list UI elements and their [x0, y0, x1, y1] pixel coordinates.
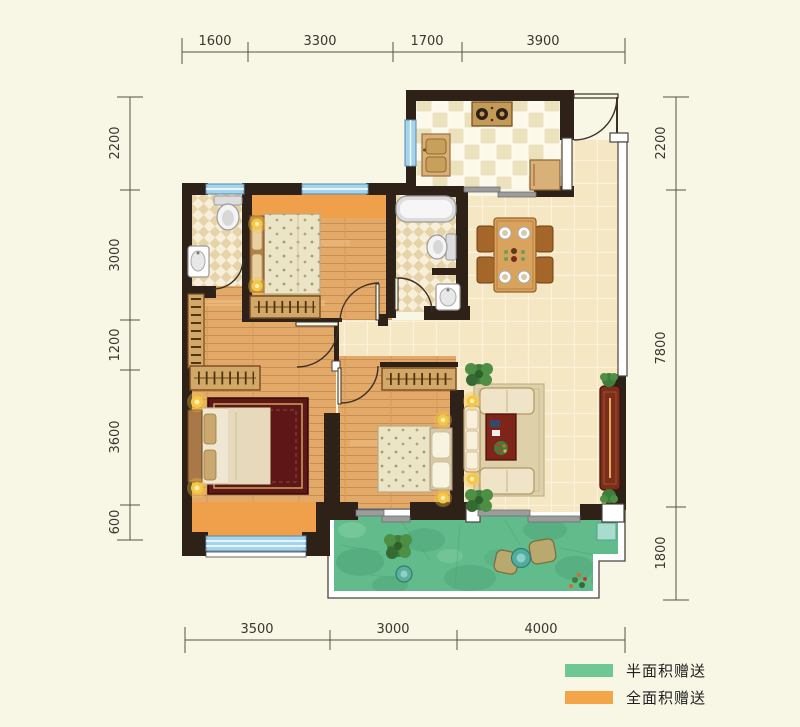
- dimension-top: 1600 3300 1700 3900: [182, 34, 625, 64]
- master-bay-strip: [190, 502, 318, 538]
- dining-chair: [536, 257, 553, 283]
- dim-left-1: 2200: [108, 126, 123, 159]
- bathtub: [396, 196, 456, 222]
- bedroom3-west-wall: [324, 413, 340, 510]
- sink1: [188, 246, 209, 277]
- legend: 半面积赠送 全面积赠送: [565, 660, 706, 708]
- dim-top-1: 1600: [198, 34, 231, 49]
- dim-bottom-2: 3000: [376, 622, 409, 637]
- entry-floor: [566, 140, 622, 198]
- dim-bottom-3: 4000: [524, 622, 557, 637]
- dining-chair: [536, 226, 553, 252]
- dim-left-4: 3600: [108, 420, 123, 453]
- tv-stand: [600, 373, 620, 503]
- dim-left-2: 3000: [108, 238, 123, 271]
- sink2: [436, 284, 460, 310]
- bathroom1-window: [206, 184, 244, 194]
- balcony-glass-panel: [597, 523, 616, 540]
- kitchen-east-wall: [560, 90, 574, 140]
- dim-top-2: 3300: [303, 34, 336, 49]
- dim-left-3: 1200: [108, 328, 123, 361]
- east-window-wall: [618, 142, 627, 376]
- kitchen-window: [405, 120, 416, 166]
- kitchen-slider: [464, 187, 500, 192]
- legend-row-half-area: 半面积赠送: [565, 660, 706, 681]
- legend-row-full-area: 全面积赠送: [565, 687, 706, 708]
- bedroom3-balcony-slider: [356, 510, 384, 516]
- bedroom2-window: [302, 184, 368, 194]
- kitchen-north-wall: [406, 90, 574, 101]
- dimension-bottom: 3500 3000 4000: [185, 622, 625, 653]
- dim-left-5: 600: [108, 510, 123, 535]
- living-plant-bottom: [465, 489, 493, 512]
- stove: [472, 102, 512, 126]
- bedroom3-bed: [378, 426, 452, 492]
- dimension-right: 2200 7800 1800: [654, 97, 689, 600]
- dining-chair: [477, 257, 494, 283]
- bedroom3-furniture: [378, 368, 456, 507]
- dim-bottom-1: 3500: [240, 622, 273, 637]
- dim-top-3: 1700: [410, 34, 443, 49]
- bedroom2-wardrobe: [250, 296, 320, 318]
- master-bay-window: [206, 536, 306, 557]
- master-wardrobe: [190, 366, 260, 390]
- kitchen-sink: [422, 134, 450, 176]
- floorplan-canvas: 1600 3300 1700 3900 2200 3000 1200 3600 …: [0, 0, 800, 727]
- legend-label-full-area: 全面积赠送: [626, 687, 706, 708]
- legend-swatch-green: [565, 664, 613, 677]
- floorplan-drawing: 1600 3300 1700 3900 2200 3000 1200 3600 …: [0, 0, 800, 727]
- living-plant-top: [465, 363, 493, 386]
- coffee-table: [486, 414, 516, 460]
- dining-chair: [477, 226, 494, 252]
- legend-label-half-area: 半面积赠送: [626, 660, 706, 681]
- dim-right-3: 1800: [654, 536, 669, 569]
- master-bed: [188, 408, 270, 484]
- bedroom2-furniture: [248, 214, 320, 318]
- bedroom3-wardrobe: [382, 368, 456, 390]
- dimension-left: 2200 3000 1200 3600 600: [108, 97, 143, 540]
- legend-swatch-orange: [565, 691, 613, 704]
- dim-right-1: 2200: [654, 126, 669, 159]
- master-shelf: [188, 294, 204, 368]
- toilet2: [427, 234, 456, 260]
- dim-right-2: 7800: [654, 331, 669, 364]
- dim-top-4: 3900: [526, 34, 559, 49]
